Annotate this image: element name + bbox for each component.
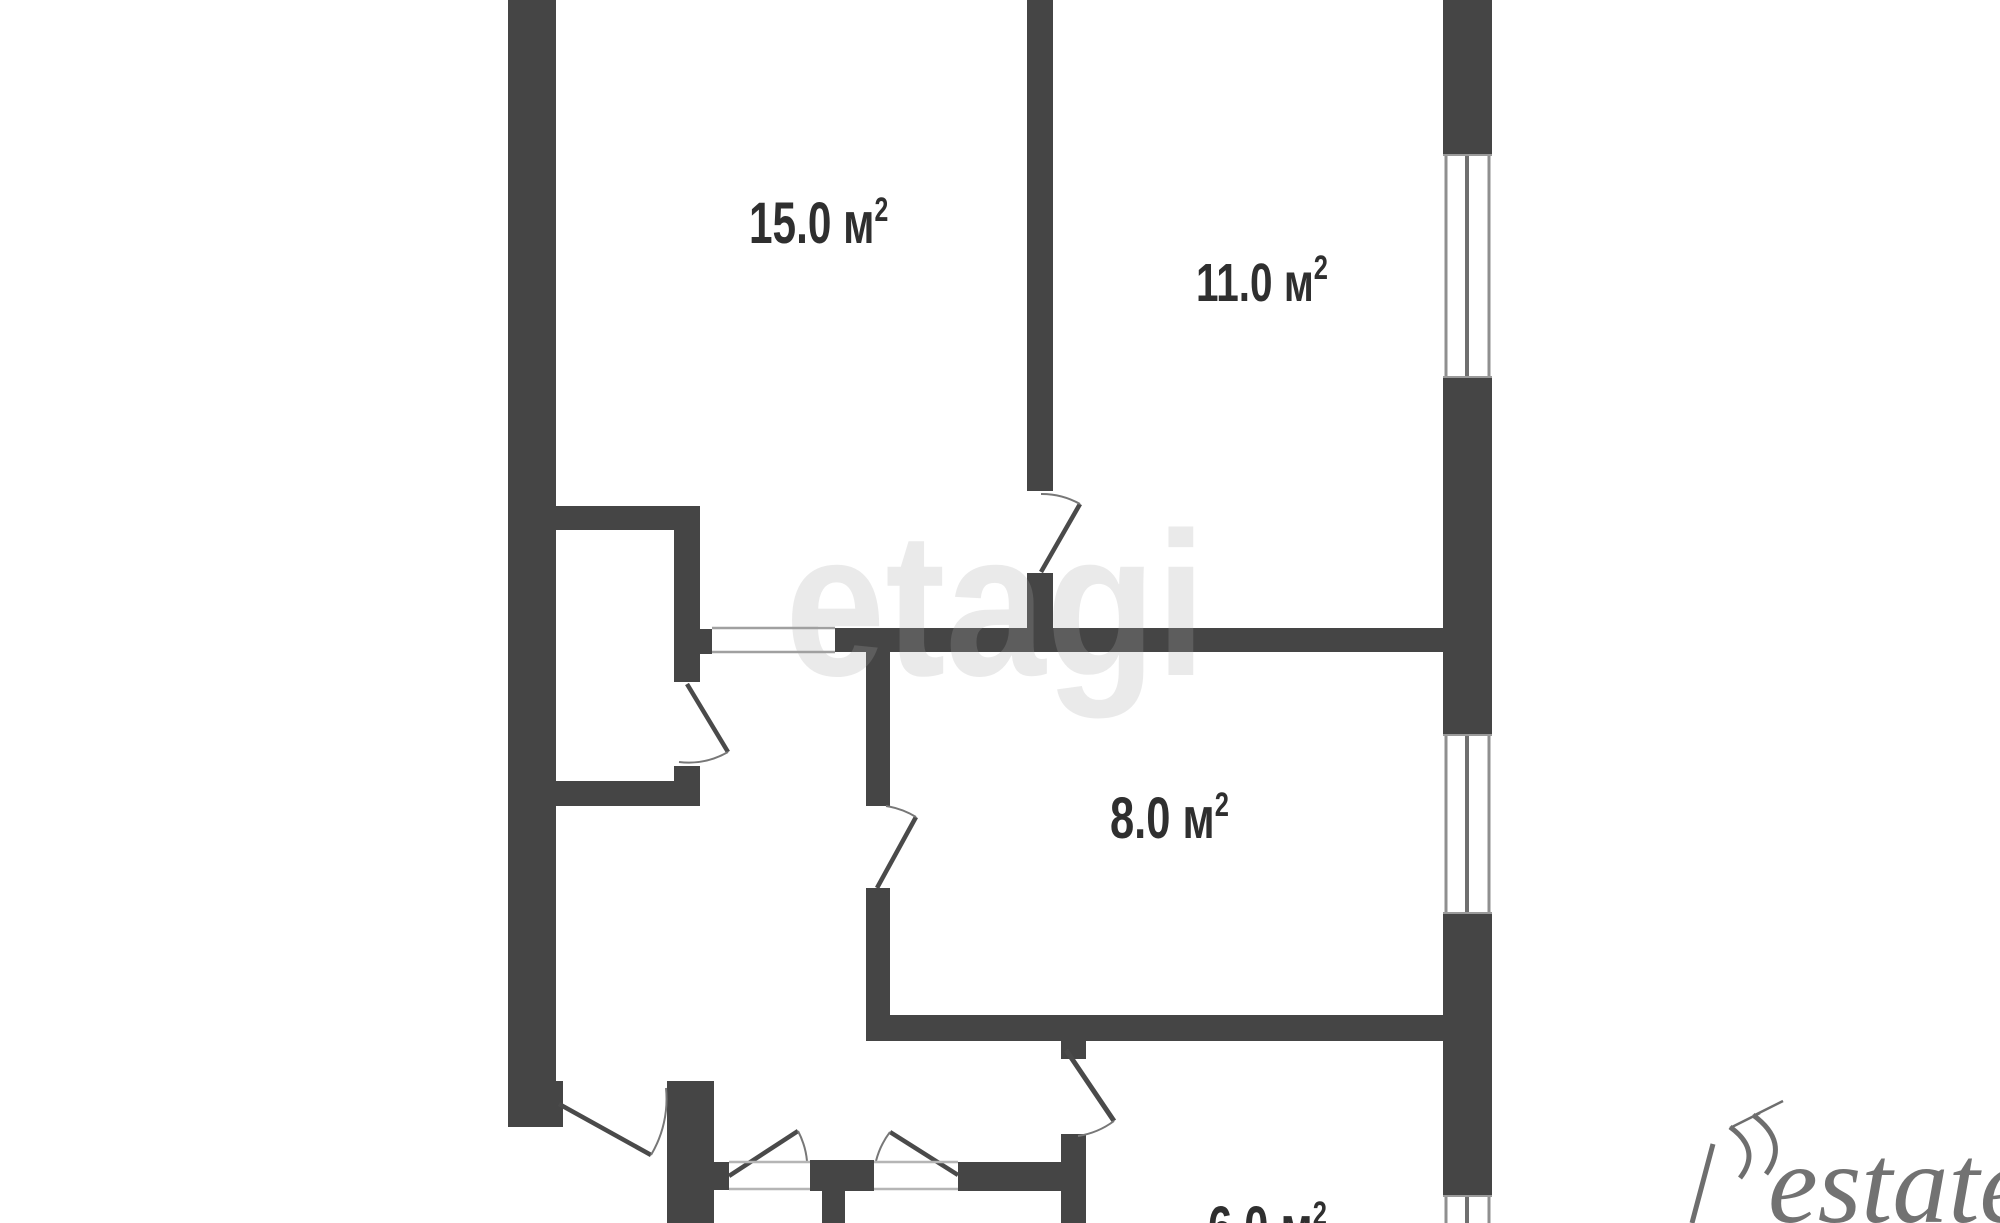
svg-text:8.0 м2: 8.0 м2 [1110,786,1229,850]
svg-text:estate: estate [1768,1123,2000,1223]
svg-text:etagi: etagi [785,489,1206,718]
svg-text:6.0 м2: 6.0 м2 [1208,1195,1327,1223]
svg-text:11.0 м2: 11.0 м2 [1196,250,1328,314]
svg-text:15.0 м2: 15.0 м2 [749,190,888,255]
